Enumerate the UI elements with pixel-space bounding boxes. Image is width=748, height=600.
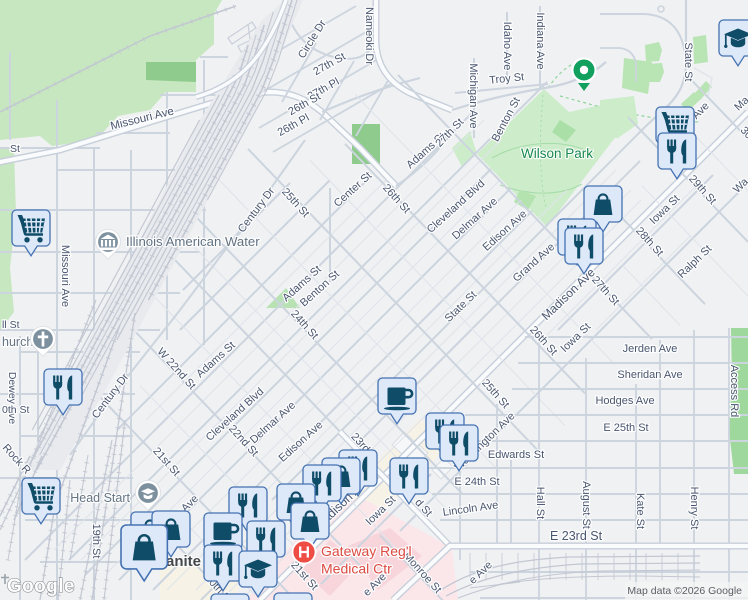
- svg-text:Jerden Ave: Jerden Ave: [623, 343, 678, 355]
- svg-text:Indiana Ave: Indiana Ave: [534, 12, 546, 69]
- svg-text:ll St: ll St: [2, 319, 20, 331]
- svg-text:0th St: 0th St: [2, 404, 30, 416]
- svg-text:Hall St: Hall St: [534, 487, 546, 519]
- svg-text:Sheridan Ave: Sheridan Ave: [617, 369, 682, 381]
- svg-text:August St: August St: [580, 481, 592, 529]
- svg-text:Missouri Ave: Missouri Ave: [59, 245, 71, 307]
- svg-text:E 23rd St: E 23rd St: [550, 529, 603, 543]
- svg-text:Wilson Park: Wilson Park: [521, 146, 593, 161]
- svg-text:St: St: [10, 143, 20, 155]
- svg-text:Henry St: Henry St: [688, 487, 700, 530]
- svg-text:Nameoki Dr: Nameoki Dr: [363, 7, 375, 65]
- svg-text:Medical Ctr: Medical Ctr: [321, 561, 392, 577]
- svg-text:Map data ©2026 Google: Map data ©2026 Google: [627, 585, 742, 597]
- svg-text:Dewey Ave: Dewey Ave: [6, 372, 18, 424]
- svg-text:Head Start: Head Start: [70, 491, 130, 505]
- svg-text:Idaho Ave: Idaho Ave: [501, 22, 513, 71]
- svg-text:Gateway Reg'l: Gateway Reg'l: [321, 543, 412, 559]
- svg-text:Kate St: Kate St: [634, 493, 646, 529]
- svg-text:hurch: hurch: [2, 335, 33, 349]
- svg-text:Michigan Ave: Michigan Ave: [467, 63, 479, 128]
- svg-text:E 25th St: E 25th St: [603, 422, 648, 434]
- svg-text:Hodges Ave: Hodges Ave: [595, 395, 654, 407]
- svg-text:19th St: 19th St: [90, 524, 102, 559]
- svg-text:Edwards St: Edwards St: [488, 449, 544, 461]
- svg-text:Illinois American Water: Illinois American Water: [126, 234, 260, 249]
- svg-text:State St: State St: [682, 42, 694, 81]
- svg-text:E 24th St: E 24th St: [454, 476, 499, 488]
- svg-text:Google: Google: [7, 576, 75, 597]
- svg-text:Access Rd: Access Rd: [728, 365, 740, 418]
